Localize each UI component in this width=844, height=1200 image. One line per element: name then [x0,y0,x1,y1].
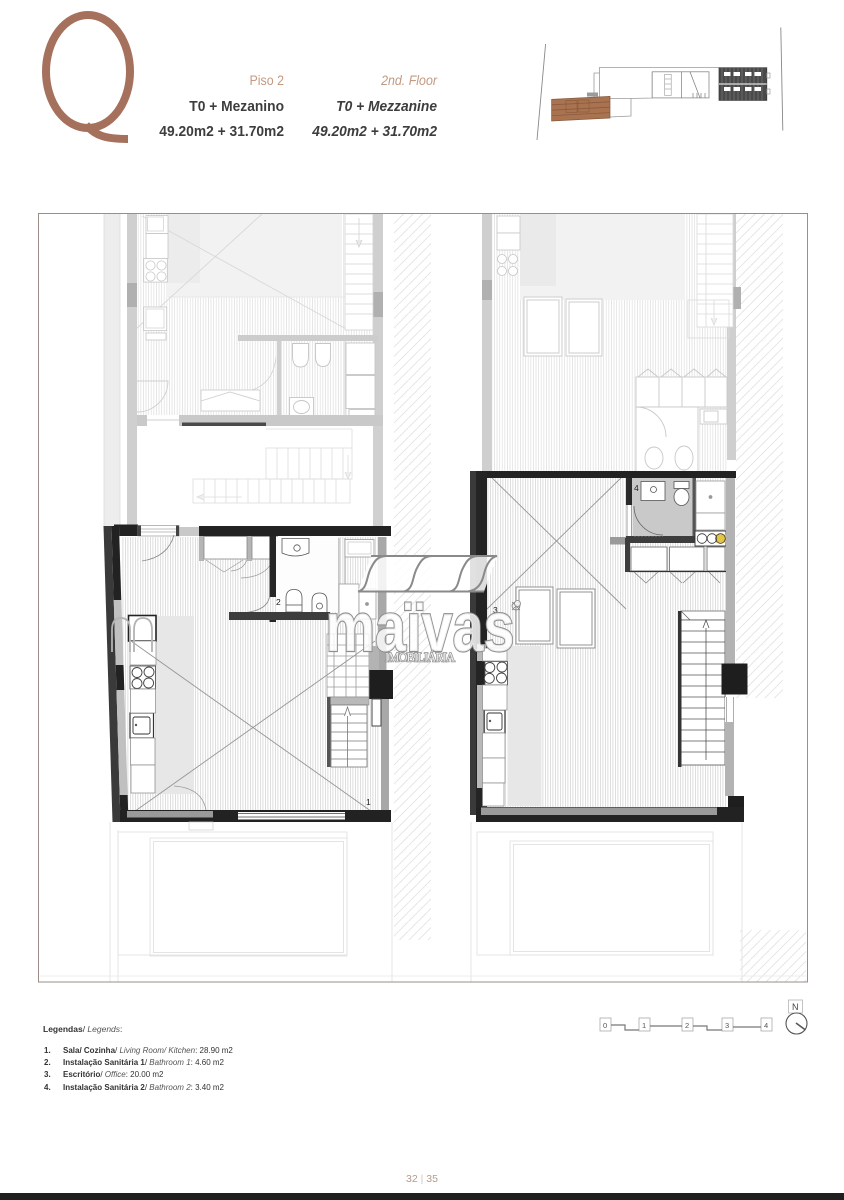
svg-text:3: 3 [725,1021,729,1030]
svg-text:4: 4 [634,483,639,493]
svg-text:2: 2 [685,1021,689,1030]
svg-text:1: 1 [366,797,371,807]
svg-text:0: 0 [603,1021,607,1030]
svg-text:1: 1 [642,1021,646,1030]
svg-text:IMOBILIÁRIA: IMOBILIÁRIA [385,651,457,665]
svg-text:4: 4 [764,1021,768,1030]
svg-text:N: N [792,1002,799,1012]
svg-text:2: 2 [276,597,281,607]
